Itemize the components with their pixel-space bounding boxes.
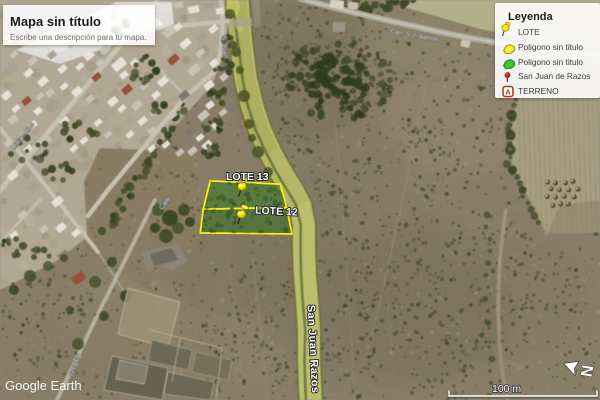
svg-text:100 m: 100 m [492,383,521,395]
svg-text:San Juan Razos: San Juan Razos [305,305,322,394]
svg-text:Google Earth: Google Earth [5,378,82,393]
svg-text:LOTE 13: LOTE 13 [226,171,269,183]
svg-text:LOTE 12: LOTE 12 [255,205,298,219]
svg-text:A: A [505,88,511,97]
svg-text:N: N [579,364,598,378]
